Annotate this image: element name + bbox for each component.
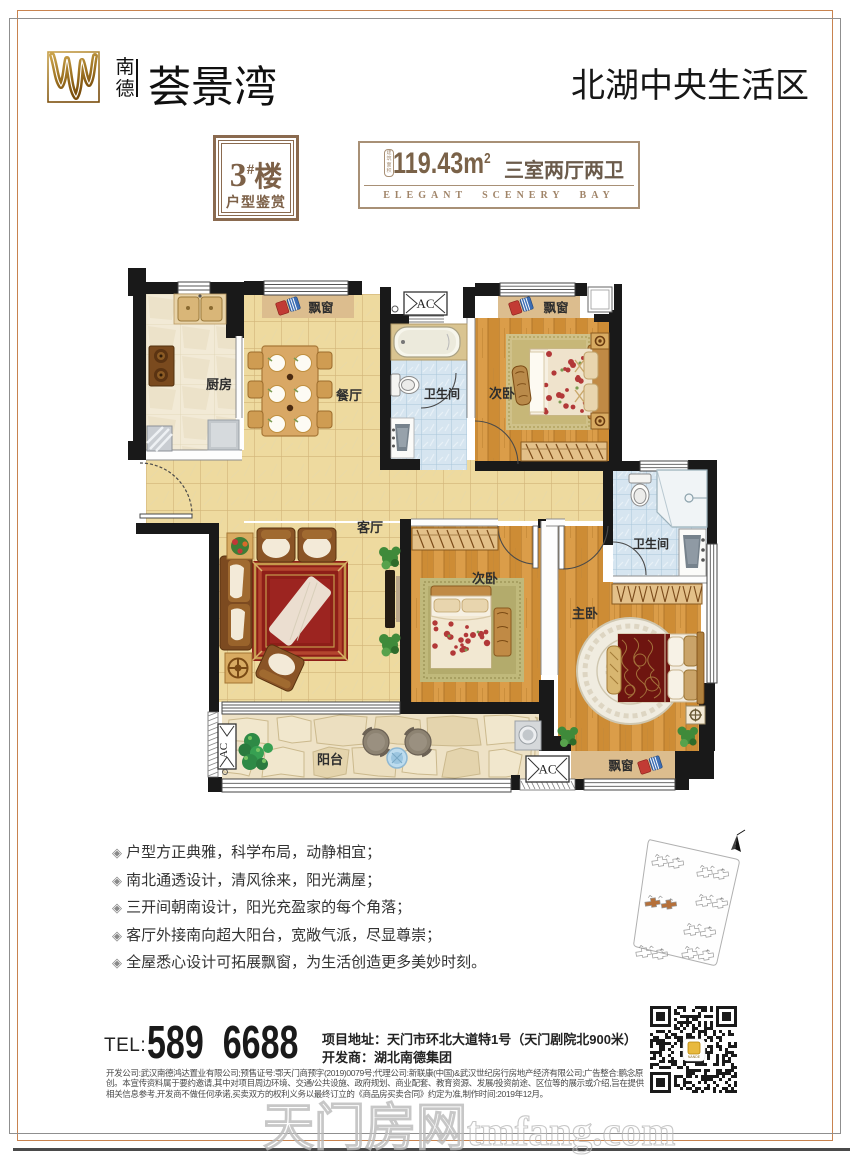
svg-text:阳台: 阳台 [317, 752, 343, 767]
svg-text:AC: AC [416, 296, 434, 311]
svg-text:飘窗: 飘窗 [543, 300, 568, 315]
svg-text:卫生间: 卫生间 [633, 536, 669, 551]
svg-text:NANDE: NANDE [688, 1055, 701, 1059]
svg-text:飘窗: 飘窗 [308, 300, 333, 315]
svg-text:次卧: 次卧 [472, 571, 498, 586]
svg-text:卫生间: 卫生间 [424, 386, 460, 401]
svg-text:次卧: 次卧 [489, 386, 515, 401]
svg-text:AC: AC [538, 762, 556, 777]
svg-text:AC: AC [218, 743, 230, 758]
svg-text:客厅: 客厅 [357, 520, 383, 535]
svg-text:飘窗: 飘窗 [608, 758, 633, 773]
svg-text:餐厅: 餐厅 [335, 388, 362, 403]
svg-text:主卧: 主卧 [572, 606, 598, 621]
svg-text:厨房: 厨房 [206, 377, 232, 392]
